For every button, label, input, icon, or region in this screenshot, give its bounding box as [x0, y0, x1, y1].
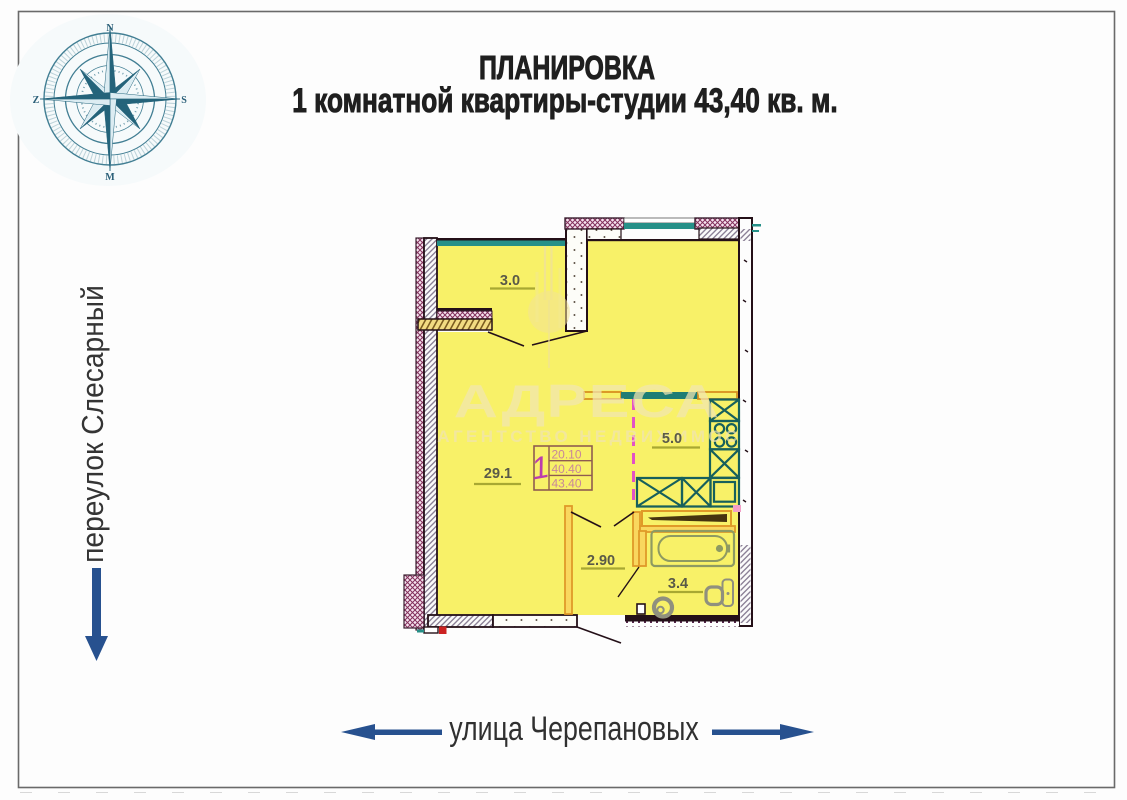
svg-text:29.1: 29.1 — [484, 466, 512, 482]
svg-text:1 комнатной квартиры-студии 43: 1 комнатной квартиры-студии 43,40 кв. м. — [292, 83, 837, 120]
svg-text:ПЛАНИРОВКА: ПЛАНИРОВКА — [479, 51, 655, 87]
svg-text:Z: Z — [33, 95, 40, 106]
svg-text:3.0: 3.0 — [500, 273, 520, 289]
svg-text:N: N — [106, 23, 114, 34]
svg-text:переулок Слесарный: переулок Слесарный — [76, 285, 111, 563]
svg-text:5.0: 5.0 — [662, 431, 682, 447]
svg-text:43.40: 43.40 — [552, 477, 582, 491]
svg-text:АГЕНТСТВО НЕДВИЖИМОС: АГЕНТСТВО НЕДВИЖИМОС — [437, 427, 740, 446]
svg-text:S: S — [181, 95, 187, 106]
svg-text:20.10: 20.10 — [552, 448, 582, 462]
svg-text:40.40: 40.40 — [552, 462, 582, 476]
svg-text:2.90: 2.90 — [587, 553, 615, 569]
svg-text:улица Черепановых: улица Черепановых — [449, 710, 699, 748]
svg-text:АДРЕСА: АДРЕСА — [454, 376, 720, 427]
svg-text:3.4: 3.4 — [668, 576, 688, 592]
svg-text:M: M — [105, 172, 115, 183]
